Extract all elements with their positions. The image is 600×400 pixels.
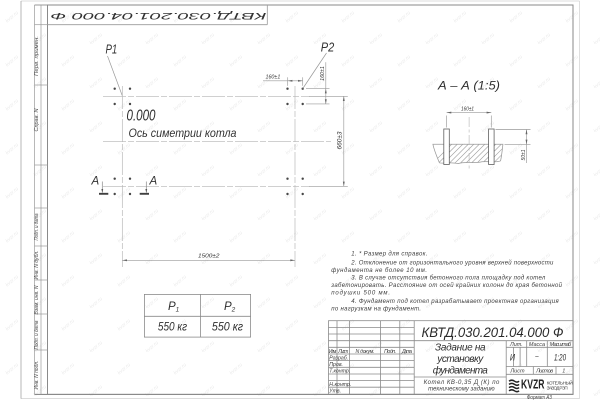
svg-text:Формат А3: Формат А3 xyxy=(527,395,553,400)
svg-text:А – А (1:5): А – А (1:5) xyxy=(437,80,500,92)
svg-text:И: И xyxy=(510,353,516,363)
svg-text:Подп. и дата: Подп. и дата xyxy=(34,213,40,240)
svg-text:P1: P1 xyxy=(106,42,118,57)
svg-text:160±1: 160±1 xyxy=(266,74,281,80)
svg-text:2. Отклонение от горизонтально: 2. Отклонение от горизонтального уровня … xyxy=(350,259,554,266)
svg-text:Пров.: Пров. xyxy=(329,362,343,368)
svg-text:A: A xyxy=(149,176,158,188)
svg-text:Лист: Лист xyxy=(337,349,349,355)
svg-text:550 кг: 550 кг xyxy=(158,322,187,334)
svg-text:Инв. N дубл.: Инв. N дубл. xyxy=(34,251,40,280)
svg-text:1500±2: 1500±2 xyxy=(198,254,220,260)
svg-text:4. Фундамент под котел разраба: 4. Фундамент под котел разрабатывает про… xyxy=(351,299,559,305)
svg-text:фундамента: фундамента xyxy=(433,365,488,377)
svg-text:1:20: 1:20 xyxy=(554,353,566,363)
svg-text:Изм.: Изм. xyxy=(329,349,337,355)
svg-text:1: 1 xyxy=(562,369,565,375)
svg-text:Утв.: Утв. xyxy=(329,389,341,395)
svg-text:Подп.: Подп. xyxy=(384,349,396,355)
svg-text:КВТД.030.201.04.000 Ф: КВТД.030.201.04.000 Ф xyxy=(422,325,564,340)
svg-text:660±3: 660±3 xyxy=(336,131,343,150)
svg-text:KVZR: KVZR xyxy=(521,378,545,392)
svg-text:A: A xyxy=(91,176,100,188)
svg-text:Справ. N: Справ. N xyxy=(34,108,40,131)
svg-text:Ось симетрии котла: Ось симетрии котла xyxy=(129,127,237,140)
svg-text:N докум.: N докум. xyxy=(356,349,375,355)
svg-text:ЗАВОД РЭП: ЗАВОД РЭП xyxy=(547,386,568,391)
svg-text:Т.контр.: Т.контр. xyxy=(329,369,350,375)
svg-text:Разраб.: Разраб. xyxy=(329,355,348,361)
svg-text:Н.контр.: Н.контр. xyxy=(329,382,351,388)
svg-text:подушки 500 мм.: подушки 500 мм. xyxy=(331,290,390,296)
svg-text:1. * Размер для справок.: 1. * Размер для справок. xyxy=(351,252,427,258)
svg-text:КОТЕЛЬНЫЙ: КОТЕЛЬНЫЙ xyxy=(547,378,573,385)
svg-text:P2: P2 xyxy=(321,40,335,55)
svg-text:Лист: Лист xyxy=(509,369,525,375)
svg-text:550 кг: 550 кг xyxy=(212,322,244,334)
svg-text:160±1: 160±1 xyxy=(320,66,326,81)
svg-text:50±1: 50±1 xyxy=(521,150,527,161)
svg-text:Масса: Масса xyxy=(529,342,545,348)
svg-text:установку: установку xyxy=(436,354,484,365)
svg-text:160±1: 160±1 xyxy=(461,107,474,113)
svg-text:3. В случае отсутствия бетонно: 3. В случае отсутствия бетонного пола пл… xyxy=(351,275,546,281)
svg-text:Листов: Листов xyxy=(535,369,553,375)
svg-text:Инв. N подл.: Инв. N подл. xyxy=(34,361,40,390)
svg-text:Лит.: Лит. xyxy=(509,342,523,348)
svg-text:по нагрузкам на фундамент.: по нагрузкам на фундамент. xyxy=(331,307,421,313)
svg-text:Котел КВ-0,35 Д (К) по: Котел КВ-0,35 Д (К) по xyxy=(424,380,500,386)
svg-text:Взам. инв. N: Взам. инв. N xyxy=(34,285,40,314)
svg-text:фундамента не более 10 мм.: фундамента не более 10 мм. xyxy=(331,268,427,274)
svg-text:Подп. и дата: Подп. и дата xyxy=(34,320,40,349)
svg-text:Задание на: Задание на xyxy=(435,343,486,354)
svg-text:0.000: 0.000 xyxy=(127,108,156,125)
svg-text:Перв. примен.: Перв. примен. xyxy=(34,36,40,76)
svg-text:–: – xyxy=(534,354,539,360)
svg-text:Дата: Дата xyxy=(401,349,412,355)
svg-text:КВТД.030.201.04.000 Ф: КВТД.030.201.04.000 Ф xyxy=(50,10,267,21)
svg-text:Масштаб: Масштаб xyxy=(550,342,572,348)
svg-text:техническому заданию: техническому заданию xyxy=(428,386,495,392)
svg-text:забетонировать. Расстояние от: забетонировать. Расстояние от осей крайн… xyxy=(330,282,562,289)
